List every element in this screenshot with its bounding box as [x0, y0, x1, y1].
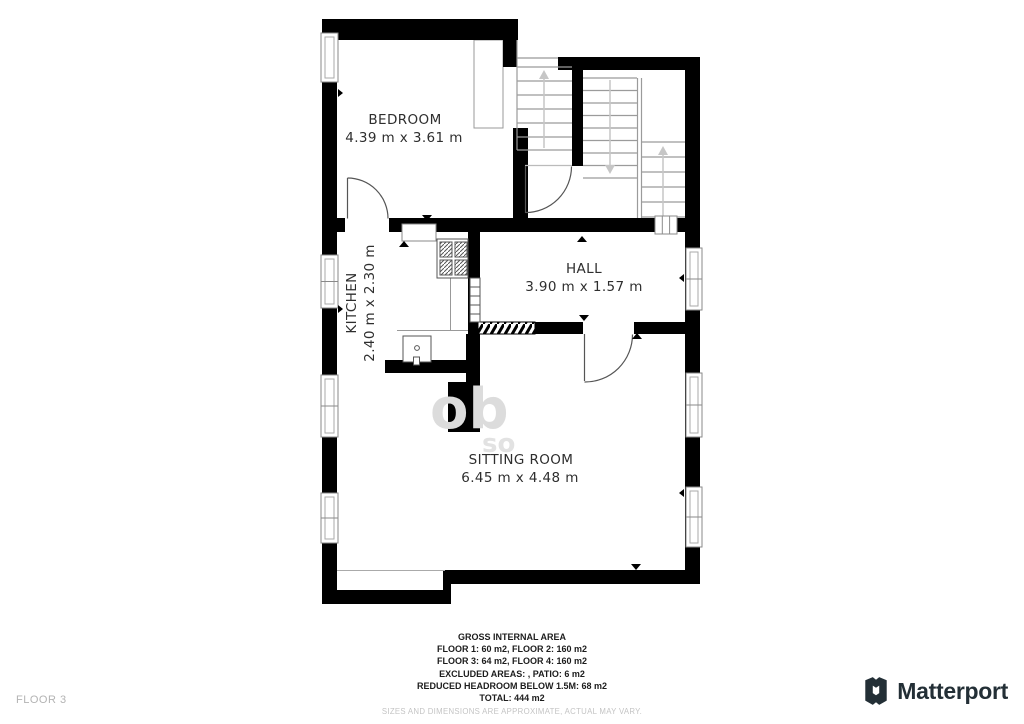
- bedroom-label: BEDROOM: [368, 112, 441, 128]
- stairwell-void: [474, 40, 503, 128]
- bedroom-door: [348, 178, 389, 219]
- sitting-room-window-left-1: [321, 375, 338, 437]
- stair-enclosure-left-wall: [572, 58, 583, 166]
- stair-divider: [638, 78, 642, 218]
- stair-arrows: [539, 70, 668, 216]
- sitting-room-label: SITTING ROOM: [469, 452, 574, 468]
- sink-icon: [403, 336, 431, 365]
- wall-recess: [402, 224, 436, 241]
- floorplan-page: ob so BEDROOM 4.39 m x 3.61 m KITCHEN 2.…: [0, 0, 1024, 724]
- bedroom-dims: 4.39 m x 3.61 m: [345, 130, 463, 146]
- bedroom-top-wall: [322, 19, 518, 40]
- sitting-room-dims: 6.45 m x 4.48 m: [461, 470, 579, 486]
- hall-dims: 3.90 m x 1.57 m: [525, 279, 643, 295]
- kitchen-dims: 2.40 m x 2.30 m: [362, 244, 378, 362]
- hall-door-opening: [583, 321, 634, 335]
- hall-window: [686, 248, 702, 310]
- radiator-icon: [470, 278, 480, 322]
- area-summary-line: FLOOR 1: 60 m2, FLOOR 2: 160 m2: [0, 643, 1024, 655]
- hall-label: HALL: [566, 261, 602, 277]
- watermark: ob so: [430, 377, 515, 459]
- kitchen-bottom-wall: [385, 360, 480, 373]
- down-arrow-icon: [605, 80, 615, 174]
- chimney-stub-wall: [466, 334, 480, 382]
- sitting-room-window-right-1: [686, 373, 702, 437]
- bay-bottom-wall: [322, 590, 451, 604]
- bedroom-door-opening: [345, 217, 389, 233]
- matterport-m-icon: [863, 676, 889, 706]
- sitting-room-window-left-2: [321, 493, 338, 543]
- walls: [322, 19, 700, 604]
- hall-top-wall-left: [497, 218, 583, 232]
- sitting-room-door: [585, 334, 633, 382]
- stairwell-small-window: [655, 216, 677, 234]
- brand-logo: Matterport: [863, 676, 1008, 706]
- area-summary-title: GROSS INTERNAL AREA: [0, 631, 1024, 643]
- floorplan-drawing: ob so BEDROOM 4.39 m x 3.61 m KITCHEN 2.…: [0, 0, 1024, 724]
- stove-icon: [437, 239, 468, 278]
- bottom-wall-main: [443, 570, 700, 584]
- kitchen-window: [321, 255, 338, 308]
- area-summary-line: FLOOR 3: 64 m2, FLOOR 4: 160 m2: [0, 655, 1024, 667]
- hatched-wall-section: [478, 322, 535, 334]
- hall-top-wall-right: [583, 218, 700, 232]
- brand-wordmark: Matterport: [897, 678, 1008, 705]
- stair-door: [526, 166, 572, 213]
- disclaimer-text: SIZES AND DIMENSIONS ARE APPROXIMATE, AC…: [0, 706, 1024, 718]
- bedroom-window: [321, 33, 338, 82]
- sitting-room-window-right-2: [686, 487, 702, 547]
- step-connector-wall: [503, 19, 517, 67]
- kitchen-label: KITCHEN: [344, 272, 360, 333]
- floor-label: FLOOR 3: [16, 694, 67, 706]
